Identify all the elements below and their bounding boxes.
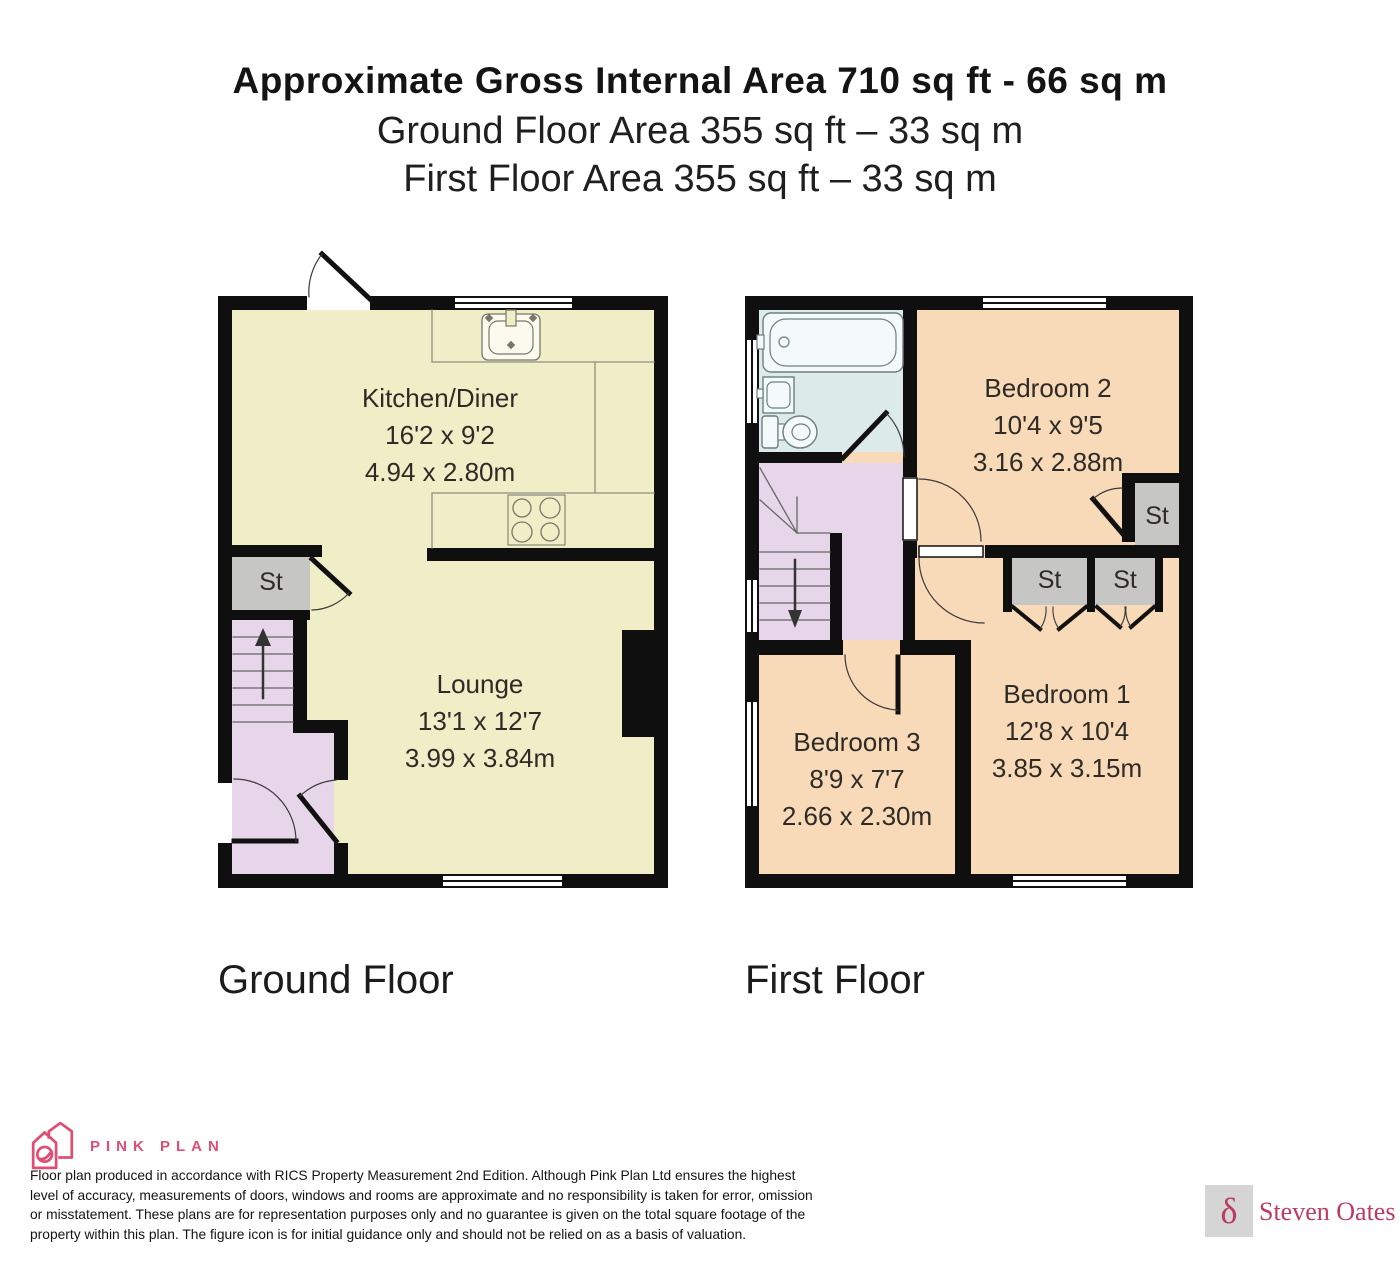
bedroom2-window [983, 296, 1106, 310]
lounge-window [443, 874, 562, 888]
hall-fill [232, 733, 334, 874]
wall-segment [1155, 558, 1163, 612]
wall-segment [562, 874, 668, 888]
room-name: Bedroom 3 [759, 724, 955, 761]
landing-window [745, 580, 759, 632]
room-dims-imperial: 13'1 x 12'7 [330, 703, 630, 740]
room-name: Bedroom 1 [917, 676, 1217, 713]
bathroom-window [745, 340, 759, 423]
kitchen-window [455, 296, 572, 310]
bathroom-fill [759, 310, 903, 452]
room-dims-imperial: 16'2 x 9'2 [285, 417, 595, 454]
room-dims-imperial: 12'8 x 10'4 [917, 713, 1217, 750]
room-name: Bedroom 2 [898, 370, 1198, 407]
wall-segment [232, 545, 322, 557]
wall-segment [745, 296, 983, 310]
wall-segment [903, 541, 917, 558]
first-floor-title: First Floor [745, 958, 925, 1003]
wall-segment [218, 296, 232, 783]
first-floor-area-subtitle: First Floor Area 355 sq ft – 33 sq m [0, 158, 1400, 201]
wall-segment [745, 423, 759, 580]
pink-plan-brand: PINK PLAN [30, 1120, 225, 1172]
bedroom2-label: Bedroom 2 10'4 x 9'5 3.16 x 2.88m [898, 370, 1198, 481]
bathroom-wall [759, 452, 842, 463]
wall-segment [232, 610, 310, 620]
stairs-divider-wall [830, 533, 842, 640]
room-name: Kitchen/Diner [285, 380, 595, 417]
disclaimer-line: or misstatement. These plans are for rep… [30, 1205, 813, 1225]
store-label: St [246, 568, 296, 597]
wall-segment [370, 296, 455, 310]
room-dims-metric: 3.99 x 3.84m [330, 740, 630, 777]
wall-segment [1003, 558, 1012, 612]
wall-segment [1126, 874, 1193, 888]
wall-segment [334, 843, 348, 874]
wall-segment [745, 874, 1013, 888]
ground-floor-area-subtitle: Ground Floor Area 355 sq ft – 33 sq m [0, 110, 1400, 153]
room-dims-imperial: 10'4 x 9'5 [898, 407, 1198, 444]
room-dims-metric: 4.94 x 2.80m [285, 454, 595, 491]
kitchen-lounge-divider-wall [427, 548, 654, 561]
wall-segment [293, 620, 307, 733]
stairs-fill [232, 620, 293, 733]
wall-segment [900, 640, 971, 655]
room-name: Lounge [330, 666, 630, 703]
ground-floor-title: Ground Floor [218, 958, 454, 1003]
bedroom1-window [1013, 874, 1126, 888]
lounge-label: Lounge 13'1 x 12'7 3.99 x 3.84m [330, 666, 630, 777]
pink-plan-house-icon [30, 1122, 76, 1170]
room-dims-metric: 3.16 x 2.88m [898, 444, 1198, 481]
disclaimer-line: level of accuracy, measurements of doors… [30, 1186, 813, 1206]
wall-segment [745, 296, 759, 340]
wall-segment [654, 296, 668, 888]
delta-icon: δ [1221, 1190, 1238, 1232]
disclaimer-line: Floor plan produced in accordance with R… [30, 1166, 813, 1186]
room-dims-imperial: 8'9 x 7'7 [759, 761, 955, 798]
disclaimer-line: property within this plan. The figure ic… [30, 1225, 813, 1245]
bedroom3-label: Bedroom 3 8'9 x 7'7 2.66 x 2.30m [759, 724, 955, 835]
steven-oates-logo: δ [1205, 1185, 1253, 1237]
room-dims-metric: 2.66 x 2.30m [759, 798, 955, 835]
store-b-label: St [1095, 566, 1155, 595]
kitchen-label: Kitchen/Diner 16'2 x 9'2 4.94 x 2.80m [285, 380, 595, 491]
wall-segment [759, 640, 843, 655]
agent-name: Steven Oates [1259, 1197, 1395, 1227]
room-dims-metric: 3.85 x 3.15m [917, 750, 1217, 787]
store-a-label: St [1012, 566, 1087, 595]
wall-segment [1122, 473, 1135, 542]
store-bedroom2-label: St [1135, 502, 1179, 531]
bedroom-divider-wall [985, 545, 1193, 558]
disclaimer-text: Floor plan produced in accordance with R… [30, 1166, 813, 1244]
page-title: Approximate Gross Internal Area 710 sq f… [0, 60, 1400, 102]
wall-segment [745, 632, 759, 702]
bedroom3-window [745, 702, 759, 806]
brand-name: PINK PLAN [90, 1138, 225, 1155]
wall-segment [1087, 558, 1095, 612]
wall-segment [218, 874, 443, 888]
bedroom1-label: Bedroom 1 12'8 x 10'4 3.85 x 3.15m [917, 676, 1217, 787]
